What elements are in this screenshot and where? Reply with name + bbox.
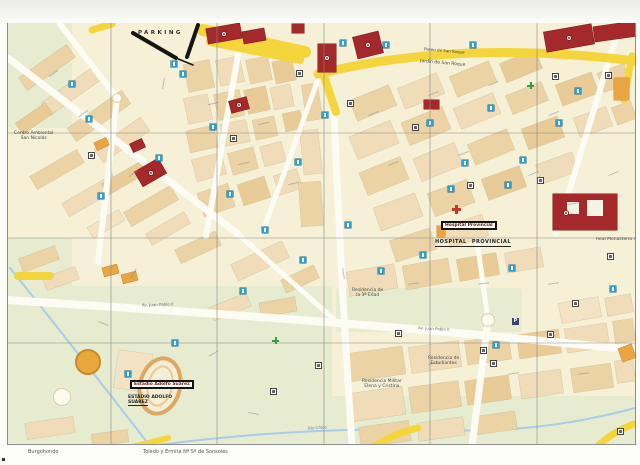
building-orange — [102, 264, 119, 277]
info-point-icon — [448, 186, 454, 192]
poi-icon — [607, 253, 614, 260]
city-block — [390, 228, 437, 262]
poi-icon — [88, 152, 95, 159]
info-point-icon — [210, 124, 216, 130]
city-block — [298, 181, 323, 226]
info-point-icon — [156, 155, 162, 161]
city-block — [175, 231, 221, 263]
street-name-mark — [528, 171, 539, 176]
street-name-mark — [508, 372, 519, 375]
city-block — [359, 157, 409, 196]
monument-building — [424, 100, 439, 109]
city-block — [605, 294, 634, 316]
city-block — [402, 258, 451, 290]
pharmacy-cross-icon — [272, 337, 279, 344]
info-point-icon — [171, 61, 177, 67]
info-point-icon — [340, 40, 346, 46]
city-block — [517, 329, 562, 359]
poi-icon — [315, 362, 322, 369]
city-block — [349, 85, 396, 121]
city-wall — [133, 33, 176, 58]
poi-icon — [537, 177, 544, 184]
info-point-icon — [488, 105, 494, 111]
centro-ambiental-line2: San Nicolás — [21, 136, 47, 141]
city-block — [237, 176, 270, 206]
info-point-icon — [69, 81, 75, 87]
plaza-de-toros — [75, 349, 101, 375]
street-name-mark — [548, 111, 559, 116]
city-block — [456, 253, 499, 282]
city-block — [481, 166, 526, 200]
jardin-san-roque-label: Jardín de San Roque — [420, 59, 466, 68]
estadio-box-label: Estadio Adolfo Suárez — [130, 380, 194, 389]
poi-icon — [270, 388, 277, 395]
info-point-icon — [378, 268, 384, 274]
monument-marker-icon — [236, 102, 242, 108]
hospital-cross-icon — [452, 205, 461, 214]
poi-icon — [347, 100, 354, 107]
info-point-icon — [227, 191, 233, 197]
city-block — [270, 84, 294, 110]
city-block — [401, 107, 451, 146]
city-block — [282, 110, 303, 131]
city-block — [30, 150, 84, 190]
scan-artifact-top — [0, 0, 640, 23]
info-point-icon — [505, 182, 511, 188]
parking-label: PARKING — [138, 30, 183, 36]
city-block — [453, 93, 500, 129]
city-block — [216, 56, 245, 86]
info-point-icon — [420, 252, 426, 258]
parking-p-icon: P — [512, 318, 519, 325]
city-block — [500, 50, 543, 83]
poi-icon — [395, 330, 402, 337]
monument-marker-icon — [365, 42, 371, 48]
residencia-militar-line2: Elena y Cristina — [364, 384, 399, 389]
poi-icon — [296, 70, 303, 77]
scanned-map-page: PARKING Paseo de San Roque Jardín de San… — [0, 0, 640, 465]
poi-icon — [605, 72, 612, 79]
margin-caption-left: Burgohondo — [28, 449, 58, 455]
paseo-san-roque-label: Paseo de San Roque — [424, 47, 465, 55]
main-road — [92, 24, 112, 30]
monument-building — [242, 28, 266, 44]
pharmacy-cross-icon — [527, 82, 534, 89]
residencia-estudiantes-label: Residencia de Estudiantes — [428, 356, 459, 366]
monasterio-label: Real Monasterio de S... — [596, 237, 635, 242]
monument-marker-icon — [148, 170, 154, 176]
city-block — [260, 141, 286, 166]
info-point-icon — [262, 227, 268, 233]
info-point-icon — [86, 116, 92, 122]
monument-marker-icon — [221, 31, 227, 37]
scan-artifact-speck — [2, 458, 5, 461]
info-point-icon — [462, 160, 468, 166]
info-point-icon — [493, 342, 499, 348]
monument-building — [292, 24, 304, 33]
city-block — [197, 184, 235, 217]
info-point-icon — [98, 193, 104, 199]
poi-icon — [552, 73, 559, 80]
city-block — [467, 129, 514, 165]
city-block — [571, 363, 614, 392]
monument-building — [593, 23, 635, 42]
info-point-icon — [610, 286, 616, 292]
city-block — [272, 58, 296, 84]
street-name-mark — [342, 268, 345, 279]
city-block — [613, 319, 635, 344]
city-block — [184, 94, 213, 124]
info-point-icon — [383, 42, 389, 48]
monument-marker-icon — [566, 35, 572, 41]
city-block — [300, 129, 323, 175]
monument-marker-icon — [563, 210, 569, 216]
residencia-estudiantes-line2: Estudiantes — [430, 361, 456, 366]
city-block — [87, 210, 124, 238]
info-point-icon — [322, 112, 328, 118]
info-point-icon — [125, 371, 131, 377]
poi-icon — [547, 331, 554, 338]
info-point-icon — [520, 157, 526, 163]
info-point-icon — [345, 222, 351, 228]
roundabout — [53, 388, 71, 406]
courtyard — [587, 200, 603, 216]
residencia-3edad-line2: la 3ª Edad — [356, 293, 379, 298]
city-block — [413, 143, 463, 182]
estadio-caps-label: ESTADIO ADOLFO SUÁREZ — [128, 395, 172, 405]
main-road — [210, 42, 300, 60]
city-block — [231, 241, 289, 281]
info-point-icon — [575, 88, 581, 94]
city-block — [373, 193, 423, 231]
city-block — [465, 335, 512, 365]
city-wall — [187, 25, 198, 57]
city-block — [252, 116, 278, 140]
residencia-3edad-label: Residencia de la 3ª Edad — [352, 288, 383, 298]
centro-ambiental-label: Centro Ambiental San Nicolás — [14, 131, 53, 141]
hospital-provincial-box-label: Hospital Provincial — [441, 221, 497, 230]
margin-caption-center: Toledo y Ermita Nª Sª de Sonsoles — [143, 449, 228, 455]
info-point-icon — [240, 288, 246, 294]
city-block — [349, 121, 399, 160]
poi-icon — [490, 360, 497, 367]
city-block — [228, 147, 259, 175]
street-name-mark — [548, 282, 559, 285]
info-point-icon — [427, 120, 433, 126]
hospital-provincial-caps-label: HOSPITAL PROVINCIAL — [435, 240, 511, 247]
main-road — [322, 70, 336, 112]
city-block — [615, 359, 635, 383]
poi-icon — [412, 124, 419, 131]
city-map: PARKING Paseo de San Roque Jardín de San… — [8, 23, 635, 444]
street-name-mark — [478, 282, 489, 285]
poi-icon — [230, 135, 237, 142]
poi-icon — [467, 182, 474, 189]
info-point-icon — [180, 71, 186, 77]
city-block — [612, 101, 635, 125]
roundabout — [112, 93, 122, 103]
info-point-icon — [509, 265, 515, 271]
info-point-icon — [300, 257, 306, 263]
city-block — [146, 212, 191, 245]
city-block — [220, 120, 250, 147]
poi-icon — [572, 300, 579, 307]
info-point-icon — [556, 120, 562, 126]
residencia-militar-label: Residencia Militar Elena y Cristina — [362, 379, 402, 389]
city-block — [246, 56, 273, 84]
street-name-mark — [458, 151, 469, 156]
street-name-mark — [162, 78, 165, 89]
city-block — [183, 60, 214, 93]
monument-marker-icon — [324, 55, 330, 61]
city-block — [574, 107, 613, 137]
poi-icon — [480, 347, 487, 354]
info-point-icon — [295, 159, 301, 165]
estadio-caps-line2: SUÁREZ — [128, 400, 148, 406]
city-block — [302, 83, 323, 121]
poi-icon — [617, 428, 624, 435]
city-block — [244, 86, 271, 114]
city-block — [565, 323, 610, 353]
info-point-icon — [470, 42, 476, 48]
city-block — [559, 297, 602, 324]
info-point-icon — [172, 340, 178, 346]
city-block — [519, 369, 564, 399]
city-block — [344, 346, 405, 382]
roundabout — [481, 313, 495, 327]
city-block — [192, 152, 227, 181]
building-orange — [614, 78, 629, 100]
street-name-mark — [608, 171, 619, 176]
